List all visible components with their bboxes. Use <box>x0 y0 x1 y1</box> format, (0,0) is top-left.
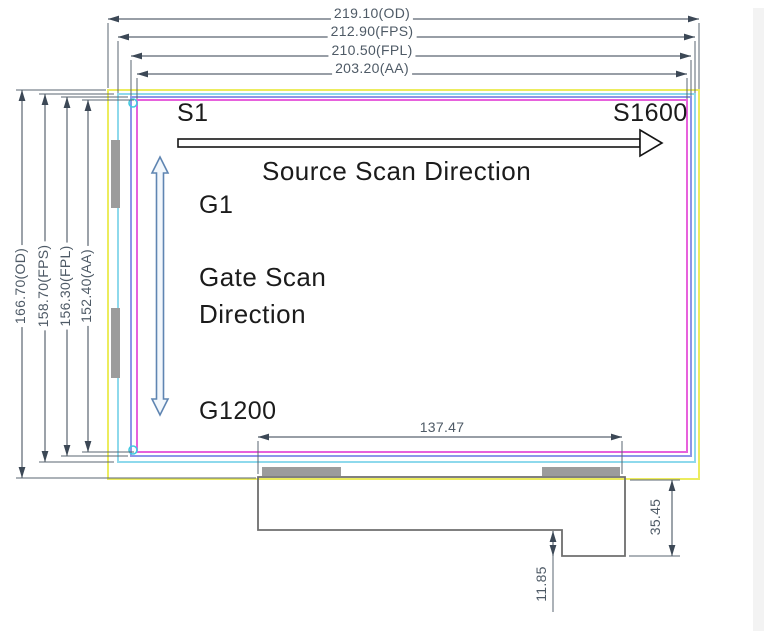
label-gate-start: G1 <box>199 192 233 220</box>
left-driver-pad-2 <box>111 308 120 378</box>
dim-label-height-fps: 158.70(FPS) <box>35 242 51 331</box>
od-outline-rect <box>108 90 699 479</box>
label-source-end: S1600 <box>613 100 688 128</box>
label-gate-end: G1200 <box>199 398 277 426</box>
dim-label-height-fpl: 156.30(FPL) <box>57 242 73 329</box>
dim-label-width-aa: 203.20(AA) <box>332 60 412 76</box>
dim-label-tab-step: 11.85 <box>533 563 549 605</box>
dim-width-aa <box>137 74 687 99</box>
source-scan-arrow-icon <box>178 130 662 156</box>
bottom-driver-pad-1 <box>262 467 341 476</box>
dim-label-tab-width: 137.47 <box>417 419 468 435</box>
label-gate-scan-line1: Gate Scan <box>199 263 326 292</box>
source-arrow-head <box>640 130 662 156</box>
dim-label-width-fps: 212.90(FPS) <box>328 23 417 39</box>
panel-outline-drawing: 219.10(OD) 212.90(FPS) 210.50(FPL) 203.2… <box>0 0 764 631</box>
dim-label-width-fpl: 210.50(FPL) <box>328 42 415 58</box>
label-source-start: S1 <box>177 100 209 128</box>
fpc-tab-outline <box>258 477 625 556</box>
bottom-driver-pad-2 <box>542 467 620 476</box>
label-source-scan-direction: Source Scan Direction <box>262 157 531 186</box>
dim-label-height-od: 166.70(OD) <box>12 245 28 327</box>
dim-label-height-aa: 152.40(AA) <box>78 246 94 326</box>
left-driver-pad-1 <box>111 140 120 208</box>
source-arrow-shaft <box>178 139 640 147</box>
gate-scan-arrow-icon <box>152 157 168 415</box>
label-gate-scan-line2: Direction <box>199 300 306 329</box>
dim-label-tab-height: 35.45 <box>647 496 663 539</box>
dim-label-width-od: 219.10(OD) <box>331 5 413 21</box>
